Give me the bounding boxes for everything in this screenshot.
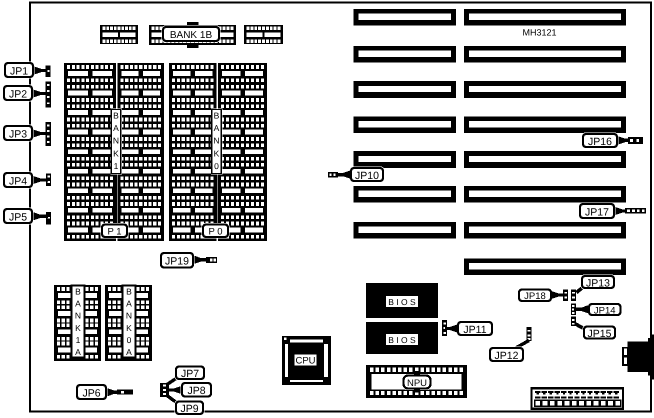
svg-text:JP4: JP4 <box>9 175 27 187</box>
svg-text:B I O S: B I O S <box>388 297 416 307</box>
svg-text:K: K <box>113 148 119 158</box>
svg-text:JP2: JP2 <box>9 88 27 100</box>
svg-text:JP3: JP3 <box>9 128 27 140</box>
svg-text:0: 0 <box>214 161 219 171</box>
svg-text:JP18: JP18 <box>524 291 546 302</box>
svg-text:K: K <box>126 323 132 333</box>
svg-text:JP17: JP17 <box>585 206 609 218</box>
svg-text:JP6: JP6 <box>82 387 100 399</box>
svg-text:A: A <box>75 347 81 357</box>
svg-text:JP13: JP13 <box>586 277 610 289</box>
svg-text:JP16: JP16 <box>588 136 612 148</box>
svg-text:K: K <box>75 323 81 333</box>
svg-text:MH3121: MH3121 <box>522 28 556 38</box>
svg-text:JP15: JP15 <box>588 328 612 340</box>
svg-text:A: A <box>126 299 132 309</box>
svg-text:JP8: JP8 <box>187 385 205 397</box>
svg-text:P 1: P 1 <box>107 227 121 238</box>
svg-text:JP11: JP11 <box>463 324 486 336</box>
svg-text:A: A <box>113 123 119 133</box>
svg-text:JP14: JP14 <box>594 305 616 316</box>
svg-text:JP1: JP1 <box>10 65 28 77</box>
svg-text:CPU: CPU <box>295 355 315 366</box>
svg-text:N: N <box>75 311 81 321</box>
svg-text:N: N <box>213 136 219 146</box>
svg-text:BANK 1B: BANK 1B <box>170 30 213 41</box>
svg-text:A: A <box>75 299 81 309</box>
svg-text:JP7: JP7 <box>181 368 199 380</box>
svg-text:1: 1 <box>76 335 81 345</box>
svg-text:NPU: NPU <box>407 378 427 389</box>
svg-text:N: N <box>113 136 119 146</box>
svg-text:JP19: JP19 <box>165 256 189 268</box>
svg-text:P 0: P 0 <box>208 227 222 238</box>
svg-text:B: B <box>214 111 220 121</box>
svg-text:B: B <box>113 111 119 121</box>
svg-text:0: 0 <box>127 335 132 345</box>
svg-text:N: N <box>126 311 132 321</box>
svg-text:JP9: JP9 <box>180 403 198 415</box>
svg-text:1: 1 <box>114 161 119 171</box>
svg-text:B: B <box>75 287 81 297</box>
svg-text:JP12: JP12 <box>495 350 519 362</box>
svg-text:A: A <box>126 347 132 357</box>
svg-text:JP5: JP5 <box>9 211 27 223</box>
svg-text:B: B <box>126 287 132 297</box>
svg-text:JP10: JP10 <box>355 170 379 182</box>
svg-text:K: K <box>214 148 220 158</box>
svg-text:B I O S: B I O S <box>388 335 416 345</box>
svg-text:A: A <box>214 123 220 133</box>
